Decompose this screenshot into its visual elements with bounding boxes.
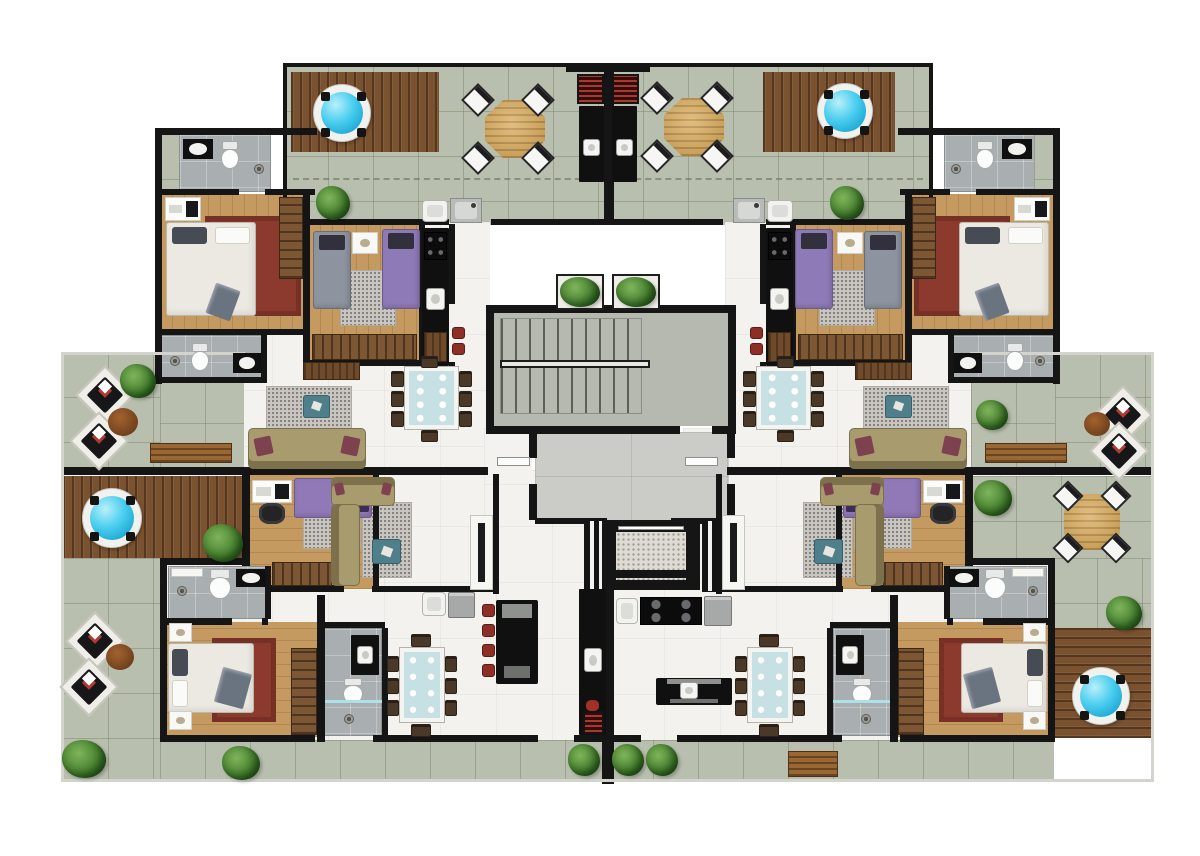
balcony-edge (61, 779, 1154, 782)
wall (965, 558, 1055, 565)
dining-chair (777, 430, 794, 442)
laundry-sink-left (422, 200, 448, 222)
bench (985, 443, 1067, 463)
wall (317, 595, 325, 742)
kitchen-sink-unit (422, 592, 446, 616)
toilet (983, 569, 1007, 599)
dining-table (400, 648, 444, 722)
kitchen-sink (426, 288, 445, 310)
fridge (448, 592, 475, 618)
wall (373, 735, 538, 742)
kettle (586, 700, 599, 711)
shower-glass (833, 700, 890, 703)
dining-chair (445, 656, 457, 672)
sideboard (855, 362, 912, 380)
nightstand (1023, 623, 1046, 642)
wall (155, 128, 162, 384)
dining-chair (421, 430, 438, 442)
kitchen-sink (584, 648, 602, 672)
wardrobe (291, 648, 317, 735)
bbq-grill (583, 711, 604, 734)
wall (830, 622, 890, 628)
office-chair (930, 503, 956, 524)
wall (1048, 558, 1055, 742)
dining-chair (735, 678, 747, 694)
stair-wall-left (486, 305, 494, 434)
wall (262, 618, 268, 625)
coffee-table (303, 395, 330, 418)
nightstand (352, 232, 378, 254)
hot-tub-left-terrace (82, 488, 142, 548)
kitchen-sink (770, 288, 789, 310)
toilet (1005, 343, 1025, 371)
wall (155, 189, 239, 195)
wall (1053, 128, 1060, 384)
dining-chair (743, 391, 756, 407)
shoe-cabinet (883, 562, 943, 586)
dining-chair (793, 700, 805, 716)
coffee-table (814, 539, 843, 564)
wall (529, 432, 537, 458)
shoe-cabinet (272, 562, 332, 586)
stair-wall-top (486, 305, 736, 313)
dining-chair (793, 678, 805, 694)
wall (976, 189, 1060, 195)
side-table (108, 408, 138, 436)
bar-stool (482, 604, 495, 617)
nightstand (837, 232, 863, 254)
wall (905, 329, 1060, 335)
wall (965, 468, 973, 566)
dining-chair (387, 678, 399, 694)
dining-chair (459, 391, 472, 407)
dining-chair (777, 356, 794, 368)
wall (155, 128, 317, 135)
plant (1106, 596, 1142, 630)
dining-chair (411, 724, 431, 737)
plant (616, 277, 656, 307)
office-chair (259, 503, 285, 524)
stair-rail (500, 360, 650, 368)
single-bed-gray (864, 231, 902, 309)
washing-machine-right (733, 198, 765, 223)
nightstand (169, 623, 192, 642)
wardrobe (912, 197, 936, 279)
entry-left-floor (484, 428, 532, 520)
bath-shelf (1012, 568, 1044, 577)
wall (449, 224, 455, 304)
wall (827, 628, 833, 738)
terrace-edge (970, 352, 1154, 355)
plant (568, 744, 600, 776)
wall (948, 377, 1060, 383)
hot-tub-top-right (817, 83, 873, 139)
wall (727, 432, 735, 458)
bar-stool (482, 624, 495, 637)
plant (120, 364, 156, 398)
plant (974, 480, 1012, 516)
plant (612, 744, 644, 776)
wall (261, 332, 267, 383)
bench (150, 443, 232, 463)
wall (900, 735, 1052, 742)
kitchen-island (496, 600, 538, 684)
bath-sink (233, 353, 261, 373)
bath-sink (1002, 139, 1032, 159)
plant (976, 400, 1008, 430)
bar-stool (452, 343, 465, 355)
dining-chair (391, 371, 404, 387)
plant (560, 277, 600, 307)
sideboard (303, 362, 360, 380)
nightstand (169, 711, 192, 730)
bench (788, 751, 838, 777)
single-bed-gray (313, 231, 351, 309)
dining-chair (387, 700, 399, 716)
coffee-table (885, 395, 912, 418)
shower-head (861, 714, 871, 724)
shower-head (254, 164, 264, 174)
toilet (220, 141, 240, 169)
shower-head (1028, 586, 1038, 596)
dining-chair (735, 700, 747, 716)
dining-chair (391, 391, 404, 407)
dining-table (405, 367, 458, 429)
bath-sink (236, 569, 266, 587)
bath-sink (357, 646, 373, 664)
dining-chair (445, 678, 457, 694)
stair-wall-right (728, 305, 736, 434)
wall (905, 192, 912, 366)
cooktop (768, 232, 791, 260)
wall (947, 618, 953, 625)
counter-sink (616, 139, 633, 156)
terrace-edge (1151, 352, 1154, 782)
sofa (849, 428, 967, 469)
plant (830, 186, 864, 220)
plant (316, 186, 350, 220)
stair-wall-bottom (486, 426, 680, 434)
hot-tub-top-left (313, 84, 371, 142)
bath-shelf (171, 568, 203, 577)
wall (242, 468, 250, 566)
bbq-grill-right (612, 74, 639, 104)
lobby-floor (535, 432, 729, 520)
terrace-edge (61, 352, 64, 782)
tv-cabinet (722, 515, 745, 590)
duct-left (584, 520, 603, 592)
wall (493, 474, 499, 594)
bath-sink (949, 569, 979, 587)
single-bed-purple (795, 229, 833, 309)
sofa (248, 428, 366, 469)
cooktop (640, 597, 702, 625)
counter-sink (583, 139, 600, 156)
wall (160, 558, 167, 742)
bar-stool (750, 327, 763, 339)
sofa-chaise (331, 477, 395, 506)
plant (203, 524, 243, 562)
wall (610, 735, 641, 742)
wall (266, 585, 344, 592)
bar-stool (452, 327, 465, 339)
hot-tub-right-terrace (1072, 667, 1130, 725)
dining-chair (743, 371, 756, 387)
shower-head (177, 586, 187, 596)
bar-stool (482, 664, 495, 677)
dining-chair (811, 411, 824, 427)
side-table (1084, 412, 1110, 436)
wardrobe (798, 334, 903, 360)
side-table (106, 644, 134, 670)
fridge (704, 596, 732, 626)
desk (252, 480, 292, 503)
desk (1014, 197, 1050, 221)
bar-stool (750, 343, 763, 355)
kitchen-sink-unit (616, 598, 638, 624)
dining-chair (387, 656, 399, 672)
wardrobe (312, 334, 417, 360)
wall (160, 558, 250, 565)
coffee-table (372, 539, 401, 564)
dining-chair (793, 656, 805, 672)
dining-chair (391, 411, 404, 427)
entry-door-right (685, 457, 718, 466)
dining-chair (421, 356, 438, 368)
sofa-seat (331, 504, 360, 586)
desk (165, 197, 201, 221)
wall (898, 128, 1060, 135)
wall (325, 622, 385, 628)
toilet (190, 343, 210, 371)
plant (62, 740, 106, 778)
wall (890, 595, 898, 742)
dining-chair (743, 411, 756, 427)
dining-chair (759, 634, 779, 647)
single-bed-purple (382, 229, 420, 309)
shower-head (170, 356, 180, 366)
dining-chair (459, 411, 472, 427)
shower-head (344, 714, 354, 724)
kitchen-sink (680, 682, 698, 699)
dining-chair (445, 700, 457, 716)
cooktop (424, 232, 447, 260)
sofa-seat (855, 504, 884, 586)
washing-machine-left (450, 198, 482, 223)
tv-cabinet (470, 515, 493, 590)
dining-chair (811, 391, 824, 407)
terrace-edge (61, 352, 245, 355)
wall (163, 735, 315, 742)
wall (574, 735, 604, 742)
dining-chair (811, 371, 824, 387)
shower-head (951, 164, 961, 174)
nightstand (1023, 711, 1046, 730)
desk (923, 480, 963, 503)
wall (155, 377, 267, 383)
wardrobe (279, 197, 303, 279)
floor-plan: Residential apartment building floor pla… (0, 0, 1200, 856)
bath-sink (842, 646, 858, 664)
sofa-chaise (820, 477, 884, 506)
dining-chair (459, 371, 472, 387)
toilet (975, 141, 995, 169)
grill-back-wall (566, 63, 650, 72)
bath-sink (183, 139, 213, 159)
entry-door-left (497, 457, 530, 466)
wall (529, 484, 537, 520)
dining-chair (735, 656, 747, 672)
wall (871, 585, 949, 592)
elevator-threshold (616, 570, 686, 578)
wall (155, 329, 310, 335)
dining-chair (759, 724, 779, 737)
dining-chair (411, 634, 431, 647)
shower-glass (325, 700, 382, 703)
bbq-grill-left (577, 74, 604, 104)
bath-sink (954, 353, 982, 373)
elevator-door-line (618, 526, 684, 530)
bar-stool (482, 644, 495, 657)
dining-table (748, 648, 792, 722)
dining-table (757, 367, 810, 429)
shower-head (1035, 356, 1045, 366)
laundry-sink-right (767, 200, 793, 222)
wardrobe (898, 648, 924, 735)
plant (646, 744, 678, 776)
plant (222, 746, 260, 780)
toilet (208, 569, 232, 599)
